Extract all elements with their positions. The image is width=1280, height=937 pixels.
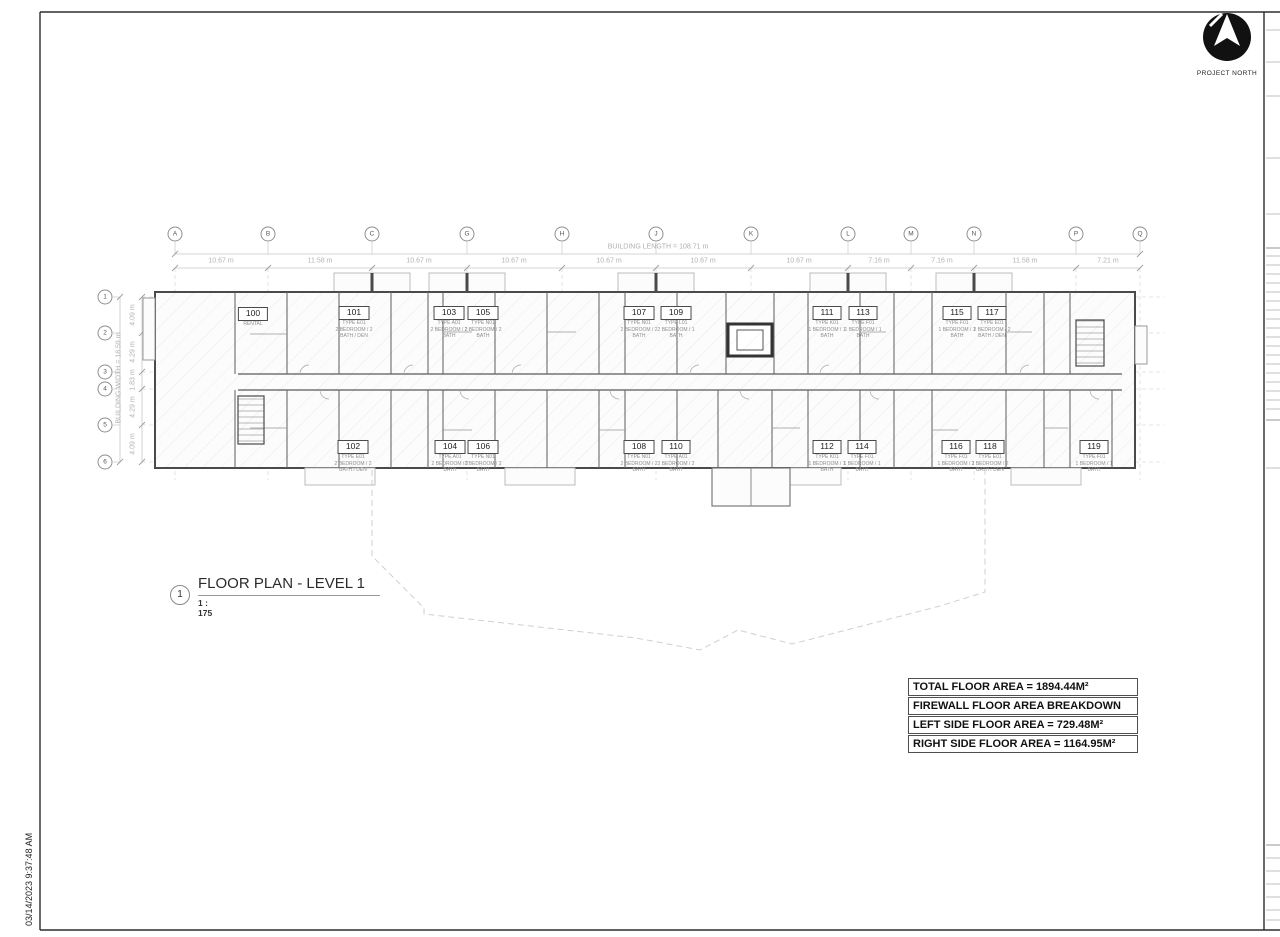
grid-bubble-col: N <box>967 227 982 242</box>
grid-bubble-row: 5 <box>98 418 113 433</box>
column-dim: 10.67 m <box>208 258 233 265</box>
stair-left <box>238 396 264 444</box>
unit-type: BATH / DEN <box>972 467 1009 474</box>
unit-label-101: 101 TYPE E01 2 BEDROOM / 2 BATH / DEN <box>336 302 373 340</box>
area-row-right-side: RIGHT SIDE FLOOR AREA = 1164.95M² <box>908 735 1138 753</box>
unit-type: BATH <box>939 333 976 340</box>
column-dim: 10.67 m <box>690 258 715 265</box>
grid-bubble-col: M <box>904 227 919 242</box>
unit-label-113: 113 TYPE F01 1 BEDROOM / 1 BATH <box>845 302 882 340</box>
unit-label-116: 116 TYPE F01 1 BEDROOM / 1 BATH <box>938 436 975 474</box>
unit-label-117: 117 TYPE E01 2 BEDROOM / 2 BATH / DEN <box>974 302 1011 340</box>
unit-number: 102 <box>338 440 368 454</box>
column-dim: 11.58 m <box>1013 258 1038 265</box>
unit-number: 119 <box>1079 440 1109 454</box>
unit-number: 117 <box>977 306 1007 320</box>
area-row-left-side: LEFT SIDE FLOOR AREA = 729.48M² <box>908 716 1138 734</box>
unit-type: BATH <box>431 333 468 340</box>
unit-type: BATH <box>844 467 881 474</box>
unit-type: BATH / DEN <box>336 333 373 340</box>
grid-bubble-col: A <box>168 227 183 242</box>
grid-bubble-col: P <box>1069 227 1084 242</box>
view-title-text: FLOOR PLAN - LEVEL 1 <box>198 575 380 596</box>
grid-bubble-row: 4 <box>98 382 113 397</box>
unit-number: 114 <box>847 440 877 454</box>
column-dim: 10.67 m <box>501 258 526 265</box>
balcony-bumpouts-top <box>334 273 1012 292</box>
center-bottom-protrusion <box>712 468 790 506</box>
firewall-marks-top <box>372 273 974 293</box>
unit-number: 110 <box>661 440 691 454</box>
unit-label-105: 105 TYPE N01 2 BEDROOM / 2 BATH <box>465 302 502 340</box>
unit-type: BATH <box>658 333 695 340</box>
unit-label-115: 115 TYPE F01 1 BEDROOM / 1 BATH <box>939 302 976 340</box>
unit-type: RENTAL <box>238 321 268 328</box>
unit-number: 115 <box>942 306 972 320</box>
elevator-core <box>728 324 772 356</box>
grid-bubble-col: Q <box>1133 227 1148 242</box>
building-length-dim: BUILDING LENGTH = 108.71 m <box>608 244 709 251</box>
unit-number: 116 <box>941 440 971 454</box>
unit-label-107: 107 TYPE N01 2 BEDROOM / 2 BATH <box>621 302 658 340</box>
building-width-dim: BUILDING WIDTH = 18.59 m <box>116 332 123 423</box>
unit-type: BATH <box>658 467 695 474</box>
unit-type: BATH / DEN <box>974 333 1011 340</box>
corridor-walls <box>238 374 1122 390</box>
column-dim: 10.67 m <box>786 258 811 265</box>
column-dim: 7.16 m <box>931 258 952 265</box>
grid-bubble-row: 2 <box>98 326 113 341</box>
site-outline-dashed <box>372 470 985 650</box>
print-timestamp: 03/14/2023 9:37:48 AM <box>24 833 34 926</box>
unit-number: 108 <box>624 440 654 454</box>
unit-type: BATH <box>621 467 658 474</box>
unit-type: BATH <box>465 333 502 340</box>
grid-bubble-row: 3 <box>98 365 113 380</box>
project-north-icon <box>1190 10 1264 64</box>
unit-type: BATH <box>621 333 658 340</box>
detail-number-bubble: 1 <box>170 585 190 605</box>
row-dim: 4.29 m <box>130 341 137 362</box>
column-dim: 7.16 m <box>868 258 889 265</box>
unit-label-108: 108 TYPE N01 2 BEDROOM / 2 BATH <box>621 436 658 474</box>
unit-label-118: 118 TYPE E01 2 BEDROOM / 2 BATH / DEN <box>972 436 1009 474</box>
row-dim: 4.09 m <box>130 433 137 454</box>
unit-type: BATH <box>1076 467 1113 474</box>
unit-number: 118 <box>975 440 1005 454</box>
unit-type: BATH <box>432 467 469 474</box>
titleblock-strip <box>1266 30 1280 920</box>
door-swings <box>300 365 1099 399</box>
row-dim: 4.29 m <box>130 396 137 417</box>
unit-label-110: 110 TYPE A01 2 BEDROOM / 2 BATH <box>658 436 695 474</box>
grid-bubble-col: J <box>649 227 664 242</box>
column-dim: 10.67 m <box>596 258 621 265</box>
unit-label-104: 104 TYPE A01 2 BEDROOM / 2 BATH <box>432 436 469 474</box>
unit-number: 107 <box>624 306 654 320</box>
area-row-total: TOTAL FLOOR AREA = 1894.44M² <box>908 678 1138 696</box>
grid-bubble-col: C <box>365 227 380 242</box>
unit-type: BATH / DEN <box>335 467 372 474</box>
column-dim: 11.58 m <box>308 258 333 265</box>
row-dim: 4.09 m <box>130 304 137 325</box>
project-north-label: PROJECT NORTH <box>1190 70 1264 77</box>
unit-label-109: 109 TYPE L01 2 BEDROOM / 1 BATH <box>658 302 695 340</box>
row-dim: 1.83 m <box>130 369 137 390</box>
grid-bubble-row: 1 <box>98 290 113 305</box>
unit-number: 106 <box>468 440 498 454</box>
project-north-block: PROJECT NORTH <box>1190 10 1264 77</box>
unit-number: 101 <box>339 306 369 320</box>
unit-label-106: 106 TYPE N01 2 BEDROOM / 2 BATH <box>465 436 502 474</box>
unit-type: BATH <box>465 467 502 474</box>
grid-bubble-row: 6 <box>98 455 113 470</box>
unit-number: 111 <box>813 306 842 320</box>
unit-label-111: 111 TYPE K01 1 BEDROOM / 1 BATH <box>809 302 846 340</box>
column-dim: 7.21 m <box>1097 258 1118 265</box>
unit-number: 109 <box>661 306 691 320</box>
unit-label-112: 112 TYPE K01 1 BEDROOM / 1 BATH <box>809 436 846 474</box>
view-scale: 1 : 175 <box>198 598 212 618</box>
bathroom-partitions <box>250 332 1068 430</box>
grid-bubble-col: G <box>460 227 475 242</box>
unit-type: BATH <box>809 467 846 474</box>
unit-label-103: 103 TYPE A01 2 BEDROOM / 2 BATH <box>431 302 468 340</box>
unit-label-100: 100 RENTAL <box>238 303 268 328</box>
grid-bubble-col: H <box>555 227 570 242</box>
unit-number: 105 <box>468 306 498 320</box>
unit-label-119: 119 TYPE F01 1 BEDROOM / 1 BATH <box>1076 436 1113 474</box>
unit-type: BATH <box>809 333 846 340</box>
area-row-breakdown-header: FIREWALL FLOOR AREA BREAKDOWN <box>908 697 1138 715</box>
unit-type: BATH <box>938 467 975 474</box>
unit-number: 112 <box>812 440 842 454</box>
grid-bubble-col: B <box>261 227 276 242</box>
column-dim: 10.67 m <box>406 258 431 265</box>
unit-label-102: 102 TYPE E01 2 BEDROOM / 2 BATH / DEN <box>335 436 372 474</box>
grid-bubble-col: K <box>744 227 759 242</box>
drawing-sheet: A B C G H J K L M N P Q 1 2 3 4 5 6 BUIL… <box>0 0 1280 937</box>
unit-number: 103 <box>434 306 464 320</box>
unit-number: 113 <box>848 306 878 320</box>
unit-number: 104 <box>435 440 465 454</box>
unit-type: BATH <box>845 333 882 340</box>
unit-number: 100 <box>238 307 268 321</box>
stair-right <box>1076 320 1104 366</box>
floor-area-table: TOTAL FLOOR AREA = 1894.44M² FIREWALL FL… <box>908 678 1138 754</box>
unit-label-114: 114 TYPE F01 1 BEDROOM / 1 BATH <box>844 436 881 474</box>
grid-bubble-col: L <box>841 227 856 242</box>
